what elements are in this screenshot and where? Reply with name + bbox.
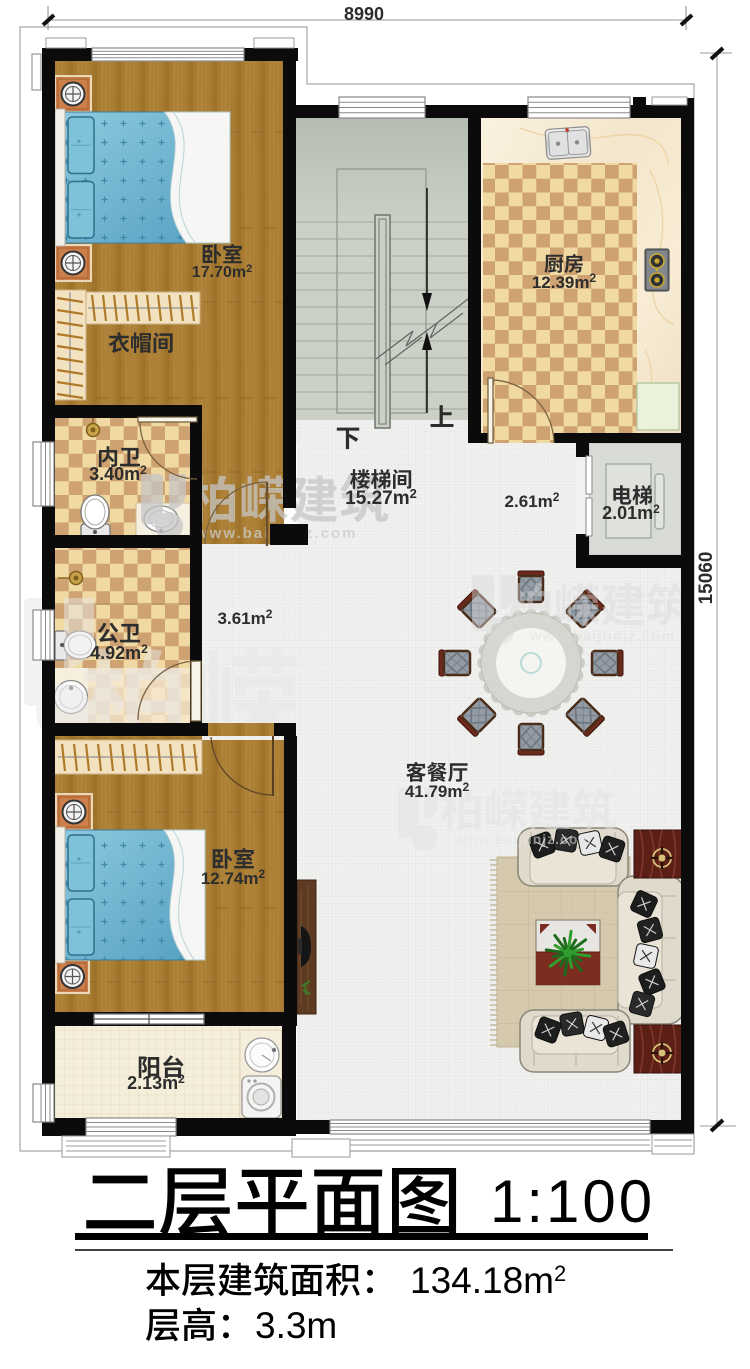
- svg-text:www.baijunjz.com: www.baijunjz.com: [454, 831, 592, 847]
- svg-text:4.92m2: 4.92m2: [90, 642, 148, 663]
- svg-text:134.18m2: 134.18m2: [410, 1260, 566, 1301]
- svg-text:15.27m2: 15.27m2: [345, 486, 417, 509]
- svg-text:1:100: 1:100: [490, 1168, 655, 1235]
- svg-text:12.74m2: 12.74m2: [201, 867, 266, 888]
- svg-text:3.61m2: 3.61m2: [218, 607, 273, 628]
- svg-text:3.40m2: 3.40m2: [89, 463, 147, 484]
- svg-text:2.61m2: 2.61m2: [505, 490, 560, 511]
- svg-text:12.39m2: 12.39m2: [532, 271, 597, 292]
- svg-text:2.01m2: 2.01m2: [602, 502, 660, 523]
- svg-text:2.13m2: 2.13m2: [127, 1072, 185, 1093]
- svg-text:15060: 15060: [696, 552, 717, 605]
- svg-text:3.3m: 3.3m: [255, 1305, 337, 1346]
- svg-text:41.79m2: 41.79m2: [405, 780, 470, 801]
- svg-text:www.baijunjz.com: www.baijunjz.com: [529, 628, 675, 645]
- svg-text:8990: 8990: [344, 4, 384, 24]
- svg-text:17.70m2: 17.70m2: [192, 263, 252, 281]
